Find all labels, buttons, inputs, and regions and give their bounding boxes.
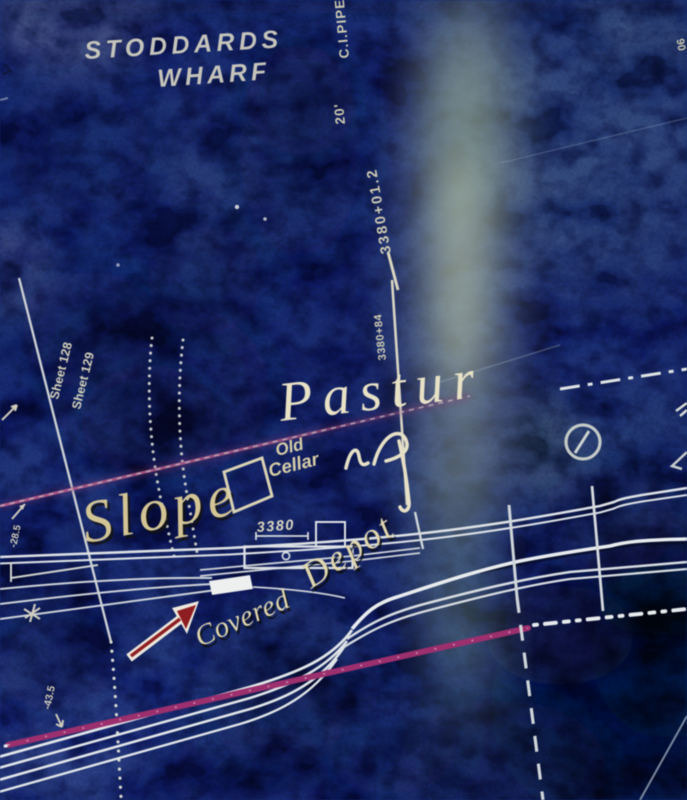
svg-text:3380: 3380 (256, 517, 295, 536)
svg-text:06: 06 (675, 37, 687, 51)
svg-text:20': 20' (331, 103, 348, 125)
